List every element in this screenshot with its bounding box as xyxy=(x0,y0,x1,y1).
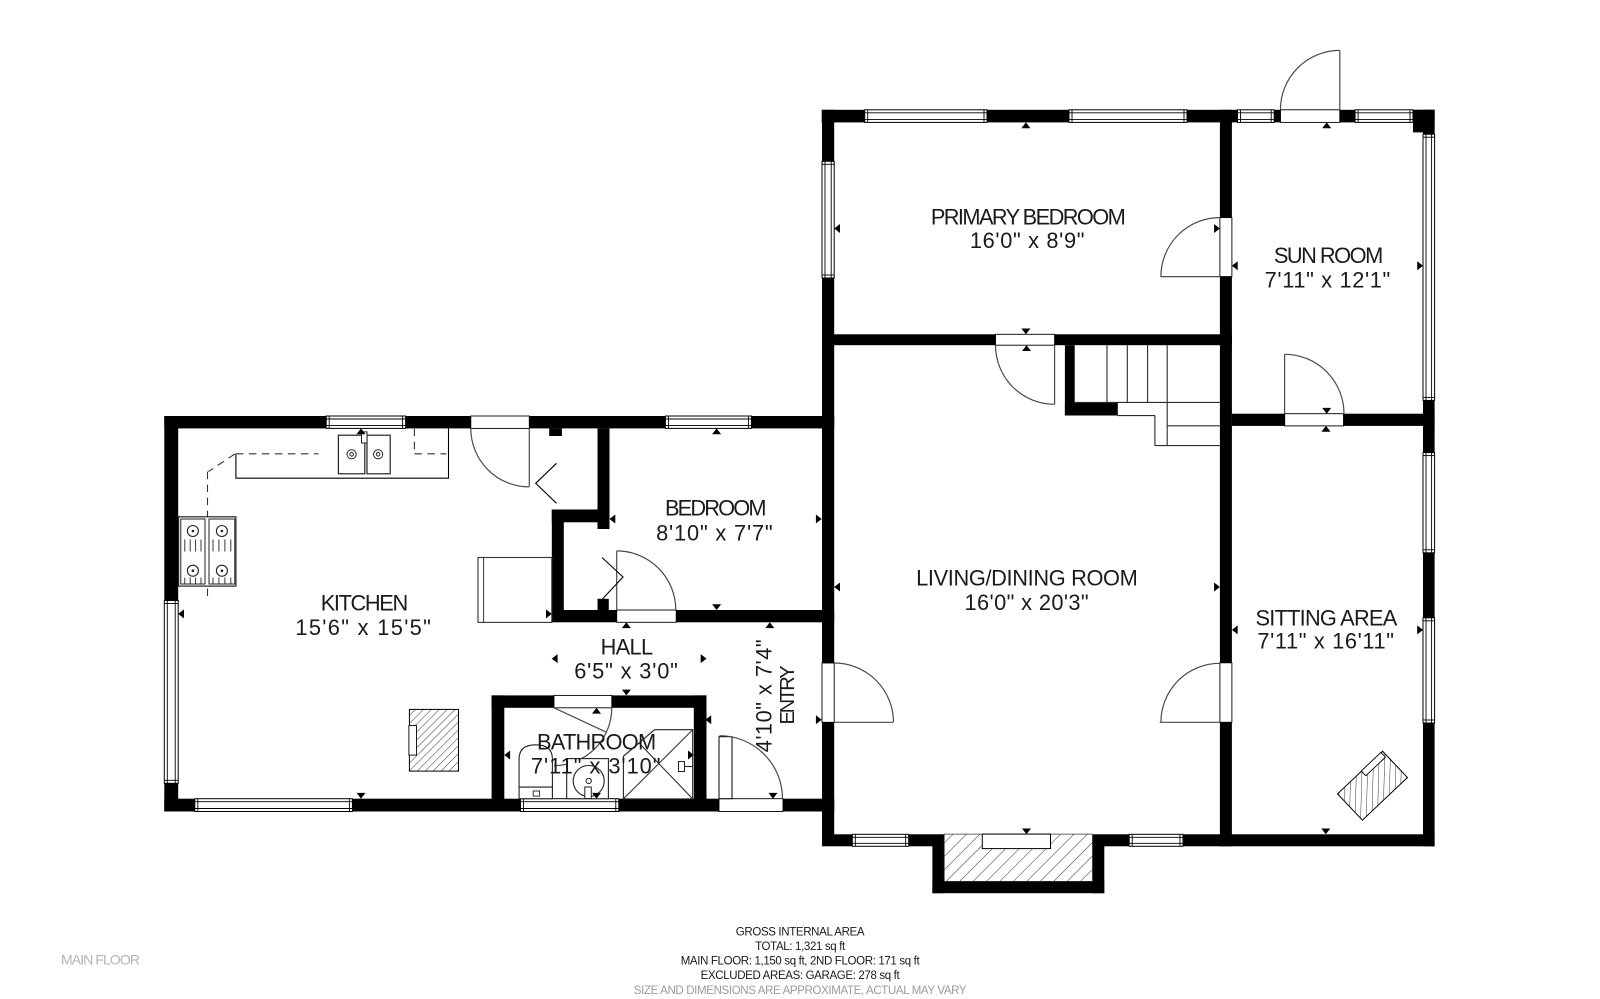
svg-text:MAIN FLOOR: MAIN FLOOR xyxy=(61,952,140,968)
svg-text:4'10" x 7'4": 4'10" x 7'4" xyxy=(751,639,776,752)
svg-text:16'0" x 20'3": 16'0" x 20'3" xyxy=(965,590,1089,615)
svg-text:BEDROOM: BEDROOM xyxy=(665,496,765,521)
svg-text:PRIMARY BEDROOM: PRIMARY BEDROOM xyxy=(931,204,1125,229)
svg-text:EXCLUDED AREAS: GARAGE: 278 sq: EXCLUDED AREAS: GARAGE: 278 sq ft xyxy=(701,970,901,982)
svg-text:6'5" x 3'0": 6'5" x 3'0" xyxy=(574,658,679,683)
svg-text:8'10" x 7'7": 8'10" x 7'7" xyxy=(656,521,773,546)
svg-text:BATHROOM: BATHROOM xyxy=(537,729,655,754)
svg-text:KITCHEN: KITCHEN xyxy=(321,591,407,616)
svg-text:LIVING/DINING ROOM: LIVING/DINING ROOM xyxy=(916,565,1137,590)
svg-text:SUN ROOM: SUN ROOM xyxy=(1274,243,1382,268)
svg-text:ENTRY: ENTRY xyxy=(777,666,799,725)
svg-text:7'11" x 16'11": 7'11" x 16'11" xyxy=(1257,628,1394,653)
svg-text:7'11" x 12'1": 7'11" x 12'1" xyxy=(1265,268,1391,293)
svg-text:15'6" x 15'5": 15'6" x 15'5" xyxy=(295,615,432,640)
svg-text:MAIN FLOOR: 1,150 sq ft, 2ND F: MAIN FLOOR: 1,150 sq ft, 2ND FLOOR: 171 … xyxy=(681,956,921,968)
svg-text:SIZE AND DIMENSIONS ARE APPROX: SIZE AND DIMENSIONS ARE APPROXIMATE, ACT… xyxy=(634,985,967,997)
svg-text:TOTAL: 1,321 sq ft: TOTAL: 1,321 sq ft xyxy=(755,941,846,953)
svg-text:7'11" x 3'10": 7'11" x 3'10" xyxy=(531,753,662,778)
svg-text:SITTING AREA: SITTING AREA xyxy=(1256,605,1398,630)
svg-text:HALL: HALL xyxy=(601,634,653,659)
svg-text:GROSS INTERNAL AREA: GROSS INTERNAL AREA xyxy=(736,927,865,939)
svg-text:16'0" x 8'9": 16'0" x 8'9" xyxy=(970,228,1085,253)
